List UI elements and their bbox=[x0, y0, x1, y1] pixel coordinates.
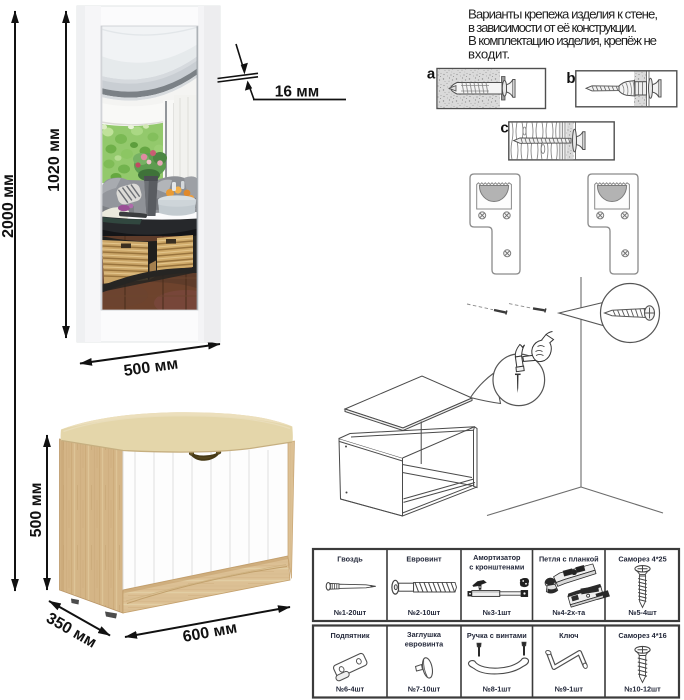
svg-text:Петля с планкой: Петля с планкой bbox=[539, 555, 599, 564]
svg-text:Ручка с винтами: Ручка с винтами bbox=[467, 631, 527, 640]
svg-text:2000 мм: 2000 мм bbox=[0, 174, 17, 238]
svg-text:№9-1шт: №9-1шт bbox=[555, 685, 584, 694]
svg-text:евровинта: евровинта bbox=[405, 640, 444, 649]
svg-text:a: a bbox=[427, 66, 436, 83]
svg-text:Гвоздь: Гвоздь bbox=[337, 555, 363, 564]
svg-text:№7-10шт: №7-10шт bbox=[408, 685, 441, 694]
svg-text:№8-1шт: №8-1шт bbox=[483, 685, 512, 694]
svg-text:входит.: входит. bbox=[468, 46, 510, 61]
svg-text:Евровинт: Евровинт bbox=[406, 555, 442, 564]
svg-text:№10-12шт: №10-12шт bbox=[624, 685, 661, 694]
svg-text:c: c bbox=[500, 120, 508, 137]
svg-text:№3-1шт: №3-1шт bbox=[483, 608, 512, 617]
svg-text:№5-4шт: №5-4шт bbox=[628, 608, 657, 617]
svg-text:Подпятник: Подпятник bbox=[330, 631, 369, 640]
svg-text:№4-2х-та: №4-2х-та bbox=[552, 608, 586, 617]
svg-text:Саморез 4*25: Саморез 4*25 bbox=[618, 555, 666, 564]
svg-text:Саморез 4*16: Саморез 4*16 bbox=[618, 631, 666, 640]
svg-text:500 мм: 500 мм bbox=[28, 483, 45, 538]
svg-text:1020 мм: 1020 мм bbox=[46, 128, 63, 192]
svg-text:Заглушка: Заглушка bbox=[407, 630, 442, 639]
svg-text:№2-10шт: №2-10шт bbox=[408, 608, 441, 617]
svg-text:№1-20шт: №1-20шт bbox=[334, 608, 367, 617]
svg-text:№6-4шт: №6-4шт bbox=[336, 685, 365, 694]
svg-text:Амортизатор: Амортизатор bbox=[473, 553, 521, 562]
svg-text:Ключ: Ключ bbox=[559, 631, 578, 640]
svg-text:b: b bbox=[566, 70, 575, 87]
svg-text:16 мм: 16 мм bbox=[275, 84, 319, 101]
svg-text:с кронштенами: с кронштенами bbox=[469, 563, 524, 572]
